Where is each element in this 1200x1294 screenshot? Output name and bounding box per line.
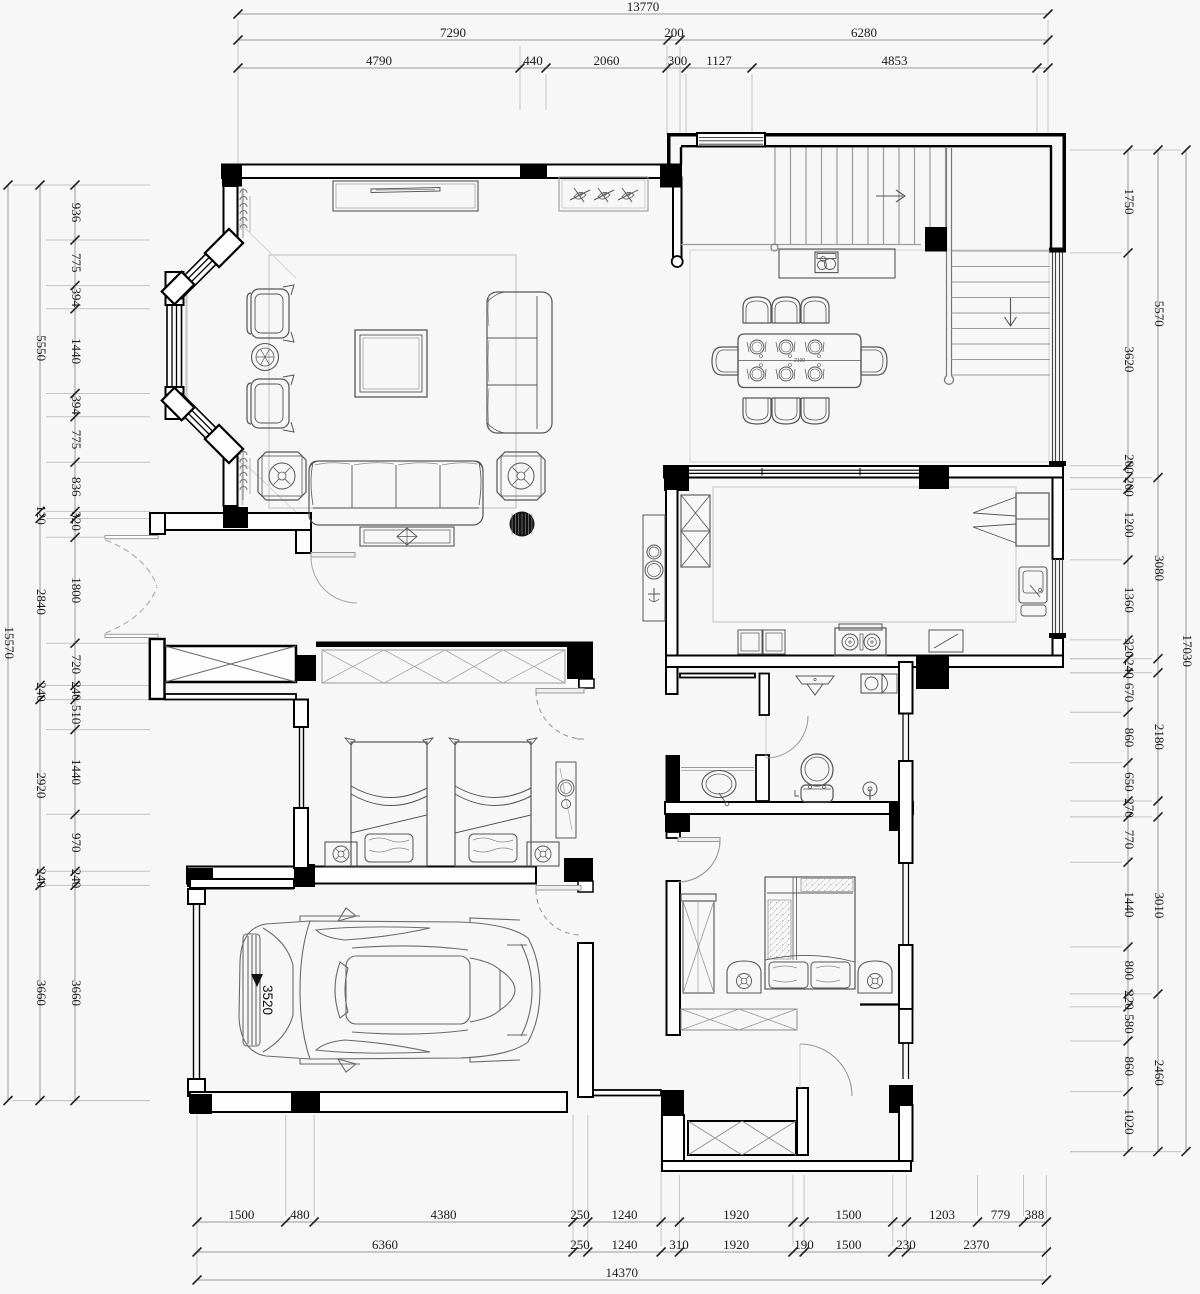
svg-text:1020: 1020 xyxy=(1122,1109,1137,1135)
svg-text:120: 120 xyxy=(34,505,49,525)
svg-text:200: 200 xyxy=(1122,454,1137,474)
svg-text:2190: 2190 xyxy=(794,358,805,364)
svg-text:650: 650 xyxy=(1122,772,1137,792)
svg-text:2180: 2180 xyxy=(1152,724,1167,750)
svg-text:4853: 4853 xyxy=(882,53,908,68)
svg-text:200: 200 xyxy=(1122,477,1137,497)
svg-text:240: 240 xyxy=(69,869,84,889)
svg-text:320: 320 xyxy=(1122,638,1137,658)
svg-text:6280: 6280 xyxy=(851,25,877,40)
svg-text:190: 190 xyxy=(794,1237,814,1252)
svg-text:440: 440 xyxy=(523,53,543,68)
svg-text:320: 320 xyxy=(69,511,84,531)
svg-text:720: 720 xyxy=(69,655,84,675)
svg-text:2920: 2920 xyxy=(34,772,49,798)
svg-text:4380: 4380 xyxy=(431,1207,457,1222)
svg-text:970: 970 xyxy=(69,833,84,853)
svg-text:1500: 1500 xyxy=(835,1237,861,1252)
svg-text:4790: 4790 xyxy=(366,53,392,68)
svg-text:250: 250 xyxy=(570,1207,590,1222)
svg-text:2370: 2370 xyxy=(963,1237,989,1252)
svg-text:936: 936 xyxy=(69,203,84,223)
svg-text:2460: 2460 xyxy=(1152,1060,1167,1086)
svg-text:7290: 7290 xyxy=(440,25,466,40)
svg-text:394: 394 xyxy=(69,287,84,307)
svg-text:1240: 1240 xyxy=(611,1207,637,1222)
svg-text:240: 240 xyxy=(1122,659,1137,679)
svg-text:1920: 1920 xyxy=(723,1207,749,1222)
svg-text:580: 580 xyxy=(1122,1014,1137,1033)
svg-text:3660: 3660 xyxy=(34,980,49,1006)
svg-text:230: 230 xyxy=(896,1237,916,1252)
svg-text:14370: 14370 xyxy=(605,1265,638,1280)
svg-text:670: 670 xyxy=(1122,683,1137,703)
svg-text:270: 270 xyxy=(1122,798,1137,818)
svg-text:1800: 1800 xyxy=(69,577,84,603)
svg-text:3520: 3520 xyxy=(260,985,275,1015)
svg-text:13770: 13770 xyxy=(627,0,660,14)
svg-text:1200: 1200 xyxy=(1122,512,1137,538)
svg-text:510: 510 xyxy=(69,705,84,725)
svg-text:1240: 1240 xyxy=(611,1237,637,1252)
svg-text:394: 394 xyxy=(69,395,84,415)
svg-text:836: 836 xyxy=(69,477,84,497)
svg-text:1360: 1360 xyxy=(1122,587,1137,613)
svg-text:3080: 3080 xyxy=(1152,555,1167,581)
svg-text:200: 200 xyxy=(664,25,684,40)
svg-text:2060: 2060 xyxy=(594,53,620,68)
svg-text:310: 310 xyxy=(669,1237,689,1252)
svg-text:2840: 2840 xyxy=(34,589,49,615)
svg-text:17030: 17030 xyxy=(1180,635,1195,668)
svg-text:3010: 3010 xyxy=(1152,892,1167,918)
svg-text:5550: 5550 xyxy=(34,335,49,361)
svg-text:779: 779 xyxy=(991,1207,1011,1222)
svg-text:3620: 3620 xyxy=(1122,346,1137,372)
svg-text:800: 800 xyxy=(1122,961,1137,981)
svg-text:860: 860 xyxy=(1122,728,1137,748)
svg-text:388: 388 xyxy=(1025,1207,1045,1222)
svg-text:240: 240 xyxy=(34,868,49,888)
svg-text:15570: 15570 xyxy=(2,627,17,660)
svg-text:860: 860 xyxy=(1122,1057,1137,1077)
svg-text:1750: 1750 xyxy=(1122,188,1137,214)
svg-text:775: 775 xyxy=(69,430,84,450)
svg-text:1500: 1500 xyxy=(228,1207,254,1222)
svg-text:240: 240 xyxy=(69,681,84,701)
svg-text:1127: 1127 xyxy=(706,53,732,68)
svg-text:1440: 1440 xyxy=(69,759,84,785)
svg-text:1440: 1440 xyxy=(69,338,84,364)
svg-text:5570: 5570 xyxy=(1152,301,1167,327)
svg-text:300: 300 xyxy=(668,53,688,68)
svg-text:1203: 1203 xyxy=(929,1207,955,1222)
svg-text:480: 480 xyxy=(290,1207,310,1222)
svg-text:1920: 1920 xyxy=(723,1237,749,1252)
svg-text:770: 770 xyxy=(1122,830,1137,850)
svg-text:775: 775 xyxy=(69,253,84,273)
svg-text:3660: 3660 xyxy=(69,980,84,1006)
svg-text:1440: 1440 xyxy=(1122,892,1137,918)
svg-text:220: 220 xyxy=(1122,990,1137,1010)
svg-text:1500: 1500 xyxy=(835,1207,861,1222)
svg-text:6360: 6360 xyxy=(372,1237,398,1252)
svg-text:250: 250 xyxy=(570,1237,590,1252)
svg-text:240: 240 xyxy=(34,682,49,702)
